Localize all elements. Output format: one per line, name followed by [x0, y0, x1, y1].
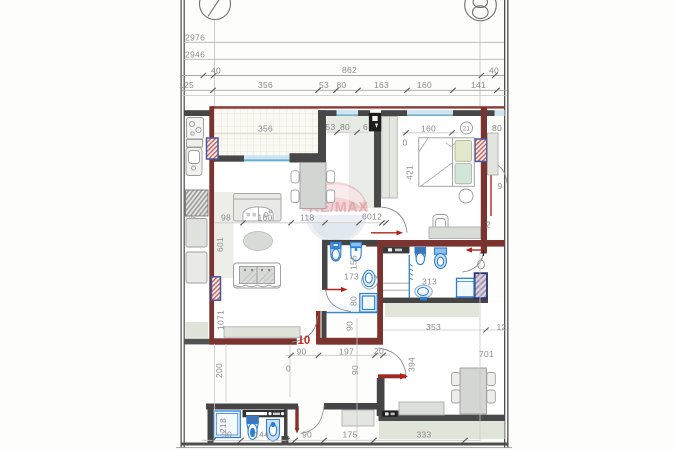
svg-text:6012: 6012 [362, 212, 382, 222]
svg-text:125: 125 [179, 80, 194, 90]
svg-text:141: 141 [471, 80, 486, 90]
svg-text:1071: 1071 [216, 310, 226, 330]
svg-text:197: 197 [339, 347, 354, 357]
svg-text:313: 313 [422, 277, 437, 287]
svg-text:6: 6 [363, 122, 368, 132]
svg-text:356: 356 [258, 80, 273, 90]
svg-text:0: 0 [286, 364, 291, 374]
svg-text:2976: 2976 [185, 33, 205, 43]
svg-text:421: 421 [405, 165, 415, 180]
svg-text:118: 118 [300, 213, 314, 223]
svg-text:701: 701 [479, 349, 494, 359]
svg-text:160: 160 [258, 213, 273, 223]
svg-text:20: 20 [374, 346, 384, 356]
svg-text:9: 9 [498, 181, 503, 191]
svg-text:394: 394 [407, 357, 417, 372]
svg-text:90: 90 [345, 321, 355, 331]
svg-text:90: 90 [222, 430, 232, 440]
svg-text:12: 12 [497, 322, 507, 332]
svg-text:80: 80 [349, 296, 359, 306]
svg-text:144: 144 [254, 430, 269, 440]
svg-text:21: 21 [463, 126, 471, 133]
svg-text:80: 80 [492, 123, 502, 133]
svg-text:160: 160 [421, 124, 436, 134]
svg-text:356: 356 [258, 124, 273, 134]
svg-text:163: 163 [374, 80, 389, 90]
svg-text:353: 353 [426, 322, 441, 332]
svg-text:40: 40 [489, 66, 499, 76]
svg-text:333: 333 [417, 430, 432, 440]
svg-text:862: 862 [342, 65, 357, 75]
svg-text:2946: 2946 [185, 50, 205, 60]
svg-text:0: 0 [403, 138, 408, 148]
svg-text:98: 98 [221, 213, 231, 223]
svg-text:155: 155 [349, 255, 359, 270]
svg-text:601: 601 [215, 237, 225, 252]
svg-text:175: 175 [343, 430, 358, 440]
svg-text:90: 90 [350, 365, 360, 375]
svg-text:160: 160 [417, 80, 432, 90]
svg-text:90: 90 [302, 430, 312, 440]
svg-text:90: 90 [297, 347, 307, 357]
svg-text:173: 173 [344, 272, 359, 282]
svg-text:200: 200 [214, 363, 224, 378]
svg-text:80: 80 [340, 122, 350, 132]
svg-text:53: 53 [326, 122, 336, 132]
svg-text:2: 2 [486, 220, 491, 230]
